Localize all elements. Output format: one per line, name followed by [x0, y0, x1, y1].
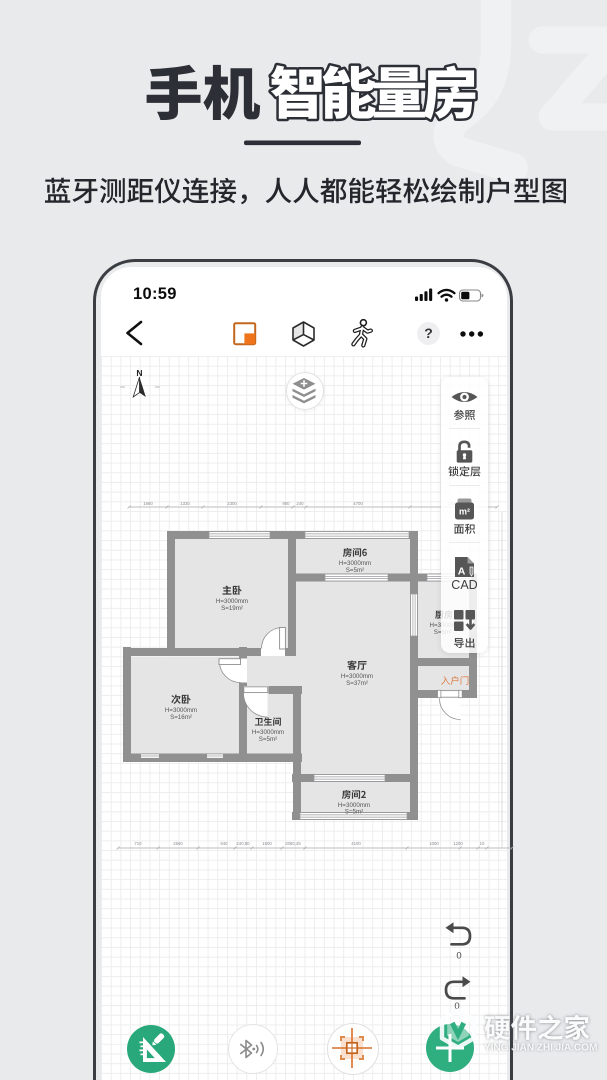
svg-text:710: 710	[134, 841, 142, 846]
svg-text:4100: 4100	[351, 841, 361, 846]
svg-text:S=16m²: S=16m²	[170, 714, 192, 721]
svg-text:10: 10	[480, 841, 485, 846]
svg-text:S=5m²: S=5m²	[345, 809, 363, 816]
svg-text:1660: 1660	[143, 501, 153, 506]
svg-text:m²: m²	[459, 507, 470, 517]
svg-text:840: 840	[220, 841, 228, 846]
svg-text:900: 900	[282, 501, 290, 506]
svg-text:1500: 1500	[262, 841, 272, 846]
svg-text:0: 0	[456, 951, 461, 962]
svg-text:2300: 2300	[227, 501, 237, 506]
svg-text:CAD: CAD	[451, 578, 477, 592]
svg-text:S=5m²: S=5m²	[346, 567, 364, 574]
svg-text:H=3000mm: H=3000mm	[341, 673, 373, 680]
svg-text:H=3000mm: H=3000mm	[216, 598, 248, 605]
svg-text:4700: 4700	[353, 501, 363, 506]
svg-text:H=3000mm: H=3000mm	[252, 729, 284, 736]
svg-text:H=3000mm: H=3000mm	[339, 560, 371, 567]
svg-text:YING JIAN ZHI JIA.COM: YING JIAN ZHI JIA.COM	[484, 1043, 597, 1054]
svg-text:2080,45: 2080,45	[285, 841, 301, 846]
svg-text:H=3000mm: H=3000mm	[165, 707, 197, 714]
svg-text:S=19m²: S=19m²	[221, 605, 243, 612]
svg-text:S=37m²: S=37m²	[346, 680, 368, 687]
svg-text:1330: 1330	[180, 501, 190, 506]
svg-text:1200: 1200	[453, 841, 463, 846]
svg-text:2560: 2560	[173, 841, 183, 846]
svg-text:A: A	[458, 566, 466, 578]
svg-text:1000: 1000	[429, 841, 439, 846]
svg-text:240: 240	[296, 501, 304, 506]
svg-text:S=5m²: S=5m²	[259, 736, 277, 743]
svg-text:240,80: 240,80	[236, 841, 250, 846]
